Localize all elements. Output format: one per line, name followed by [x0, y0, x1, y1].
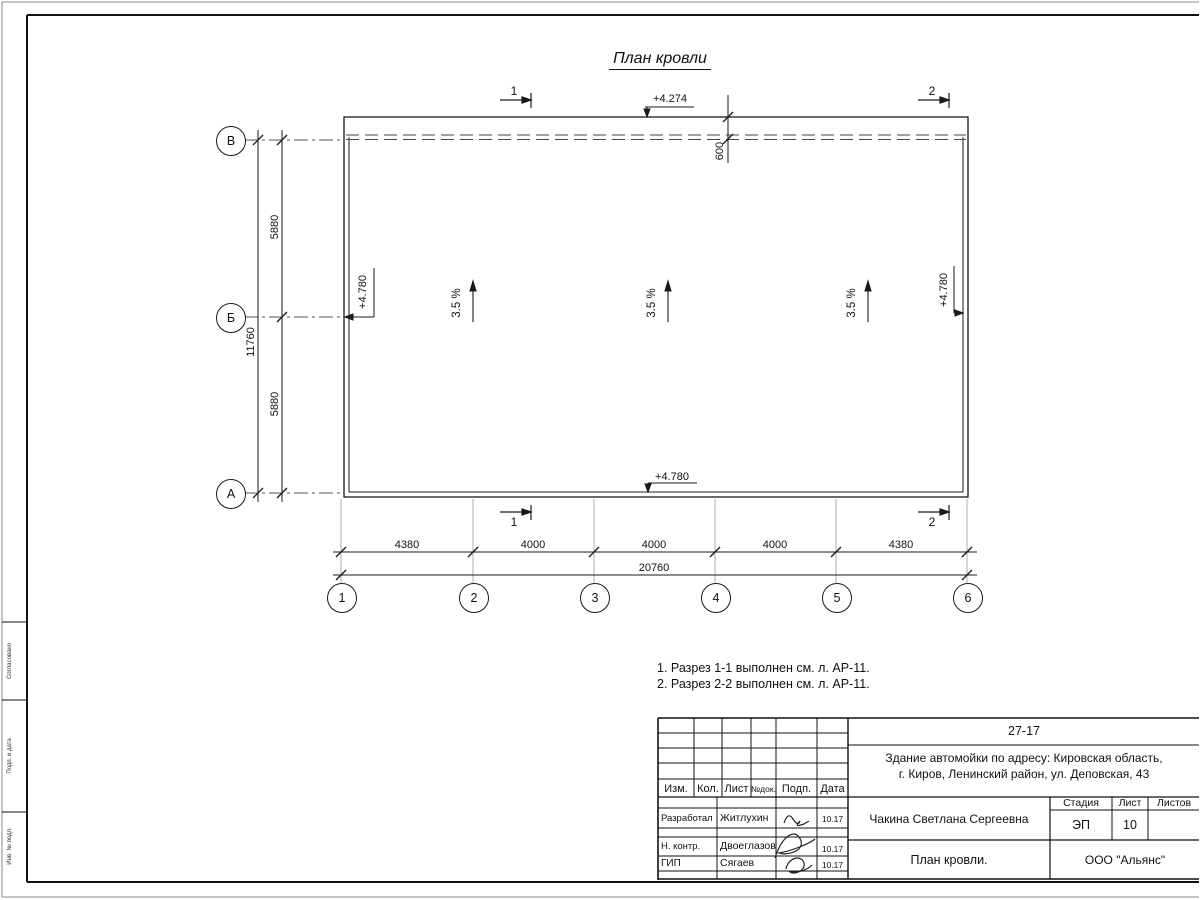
- axis-bubble-row: Б: [216, 303, 246, 333]
- section-mark-2-bottom: 2: [922, 515, 942, 528]
- tb-name: Двоеглазов: [720, 840, 776, 853]
- section-mark-1-top: 1: [504, 84, 524, 97]
- elevation-left: +4.780: [357, 268, 369, 316]
- dim-left-bottom: 5880: [269, 386, 281, 422]
- tb-role: ГИП: [661, 857, 716, 870]
- axis-bubble-col: 1: [327, 583, 357, 613]
- tb-col-data: Дата: [817, 782, 848, 796]
- drawing-title: План кровли.: [848, 853, 1050, 868]
- page-title: План кровли: [575, 48, 745, 72]
- tb-col-ndok: №док.: [751, 783, 776, 796]
- parapet-offset-dim: 600: [714, 134, 726, 168]
- tb-name: Житлухин: [720, 812, 775, 825]
- dim-left-top: 5880: [269, 209, 281, 245]
- axis-bubble-row: А: [216, 479, 246, 509]
- tb-col-kol: Кол.: [694, 782, 722, 796]
- dimension-lines: [258, 95, 977, 575]
- slope-arrows: [470, 281, 871, 322]
- tb-col-izm: Изм.: [658, 782, 694, 796]
- axis-bubble-col: 3: [580, 583, 610, 613]
- dim-bottom-seg: 4000: [634, 539, 674, 551]
- project-name-line2: г. Киров, Ленинский район, ул. Деповская…: [848, 767, 1200, 781]
- slope-label: 3.5 %: [451, 283, 465, 323]
- elevation-right: +4.780: [938, 266, 950, 314]
- dim-bottom-seg: 4380: [387, 539, 427, 551]
- stage-label: Стадия: [1050, 797, 1112, 810]
- dim-bottom-seg: 4000: [755, 539, 795, 551]
- company-name: ООО "Альянс": [1050, 852, 1200, 867]
- axis-bubble-col: 2: [459, 583, 489, 613]
- signature: [784, 816, 809, 826]
- margin-stamp: Согласовано: [5, 628, 15, 694]
- sheet-number: 10: [1112, 818, 1148, 833]
- elevation-top: +4.274: [640, 93, 700, 106]
- axis-bubble-row: В: [216, 126, 246, 156]
- doc-code: 27-17: [848, 724, 1200, 739]
- signatures: [775, 816, 815, 873]
- slope-label: 3.5 %: [846, 283, 860, 323]
- dim-bottom-seg: 4380: [881, 539, 921, 551]
- stage-value: ЭП: [1050, 818, 1112, 833]
- margin-stamp: Инв. № подл.: [5, 818, 15, 874]
- tb-date: 10.17: [817, 843, 848, 855]
- drawing-sheet: План кровли 1 2 1 2 +4.274 600 +4.780 +4…: [0, 0, 1200, 900]
- tb-name: Сягаев: [720, 857, 775, 870]
- section-mark-1-bottom: 1: [504, 515, 524, 528]
- tb-role: Разработал: [661, 812, 716, 825]
- axis-bubble-col: 4: [701, 583, 731, 613]
- note-line: 1. Разрез 1-1 выполнен см. л. АР-11.: [657, 661, 937, 675]
- author-name: Чакина Светлана Сергеевна: [848, 811, 1050, 826]
- drawing-lines: [0, 0, 1200, 900]
- slope-label: 3.5 %: [646, 283, 660, 323]
- signature: [775, 834, 815, 858]
- sheets-label: Листов: [1148, 797, 1200, 810]
- tb-date: 10.17: [817, 813, 848, 825]
- elevation-bottom: +4.780: [646, 471, 698, 483]
- dim-bottom-total: 20760: [630, 562, 678, 574]
- note-line: 2. Разрез 2-2 выполнен см. л. АР-11.: [657, 677, 937, 691]
- axis-bubble-col: 5: [822, 583, 852, 613]
- section-mark-2-top: 2: [922, 84, 942, 97]
- margin-stamp: Подп. и дата: [5, 711, 15, 801]
- dimension-ticks: [253, 112, 972, 580]
- tb-col-list: Лист: [722, 782, 751, 796]
- project-name-line1: Здание автомойки по адресу: Кировская об…: [848, 751, 1200, 765]
- grid-axes: [244, 140, 344, 493]
- tb-role: Н. контр.: [661, 840, 716, 853]
- dim-bottom-seg: 4000: [513, 539, 553, 551]
- tb-col-podp: Подп.: [776, 782, 817, 796]
- dim-left-total: 11760: [245, 320, 257, 364]
- sheet-label: Лист: [1112, 797, 1148, 810]
- axis-bubble-col: 6: [953, 583, 983, 613]
- tb-date: 10.17: [817, 859, 848, 871]
